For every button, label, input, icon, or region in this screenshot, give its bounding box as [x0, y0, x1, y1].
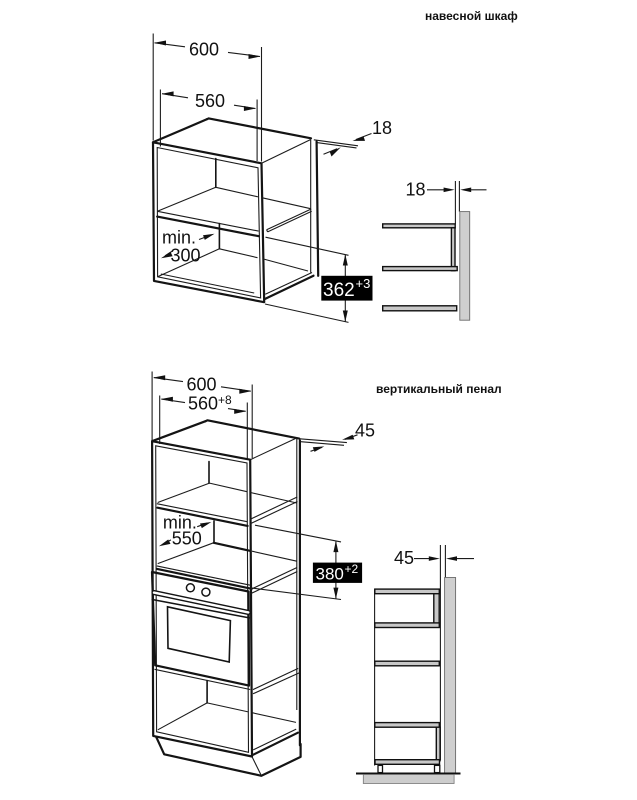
svg-text:+3: +3	[356, 276, 371, 291]
svg-text:18: 18	[405, 180, 425, 200]
svg-text:min.: min.	[162, 228, 196, 248]
svg-text:+8: +8	[218, 393, 232, 407]
svg-text:+2: +2	[345, 562, 359, 576]
svg-text:560: 560	[195, 91, 225, 111]
svg-text:18: 18	[372, 118, 392, 138]
svg-text:600: 600	[189, 40, 219, 60]
svg-text:45: 45	[394, 548, 414, 568]
svg-text:600: 600	[186, 375, 216, 395]
svg-text:560: 560	[188, 394, 218, 414]
svg-text:вертикальный пенал: вертикальный пенал	[376, 382, 502, 396]
svg-text:550: 550	[172, 528, 202, 548]
svg-text:45: 45	[355, 421, 375, 441]
svg-text:300: 300	[171, 246, 201, 266]
svg-text:362: 362	[323, 280, 355, 301]
svg-text:380: 380	[316, 565, 344, 584]
svg-text:навесной шкаф: навесной шкаф	[425, 9, 518, 23]
